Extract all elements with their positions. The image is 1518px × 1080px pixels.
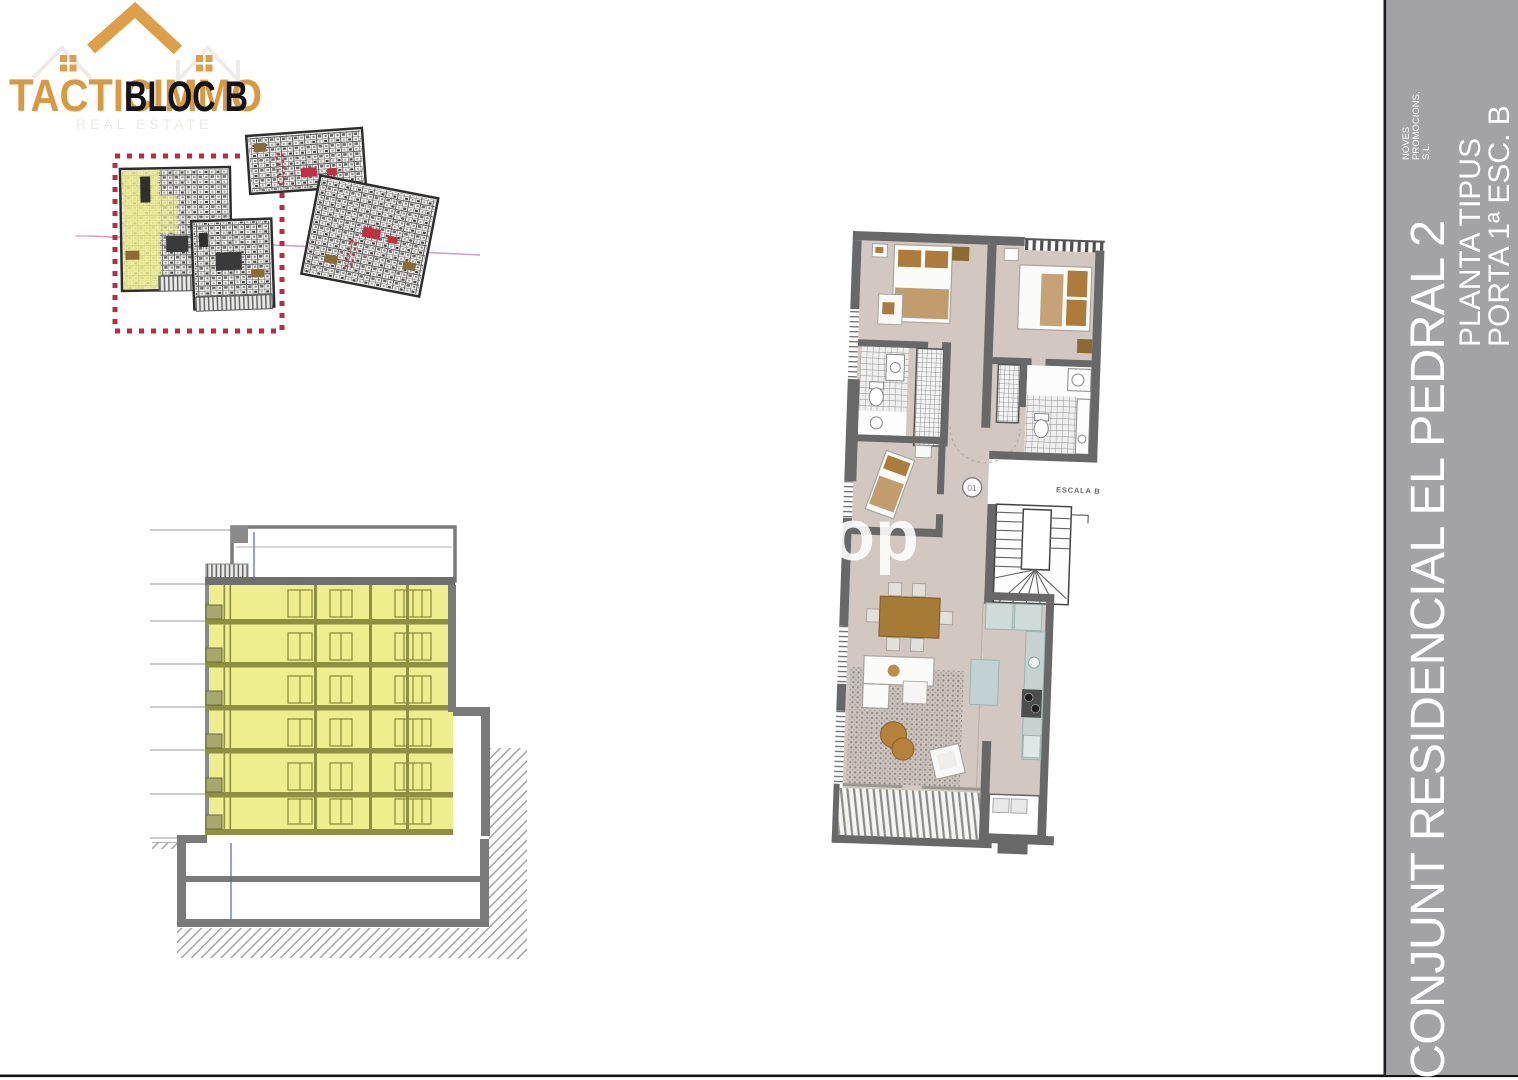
svg-text:PORTA 1ª ESC. B: PORTA 1ª ESC. B xyxy=(1483,105,1516,347)
svg-text:REAL ESTATE: REAL ESTATE xyxy=(76,116,212,132)
svg-text:op: op xyxy=(831,496,919,576)
svg-text:S.L.: S.L. xyxy=(1421,143,1432,160)
svg-text:ESCALA B: ESCALA B xyxy=(1056,485,1101,496)
svg-text:01: 01 xyxy=(967,483,977,493)
svg-text:BLOC B: BLOC B xyxy=(124,73,248,121)
svg-text:CONJUNT RESIDENCIAL EL PEDRAL: CONJUNT RESIDENCIAL EL PEDRAL 2 xyxy=(1401,221,1455,1079)
